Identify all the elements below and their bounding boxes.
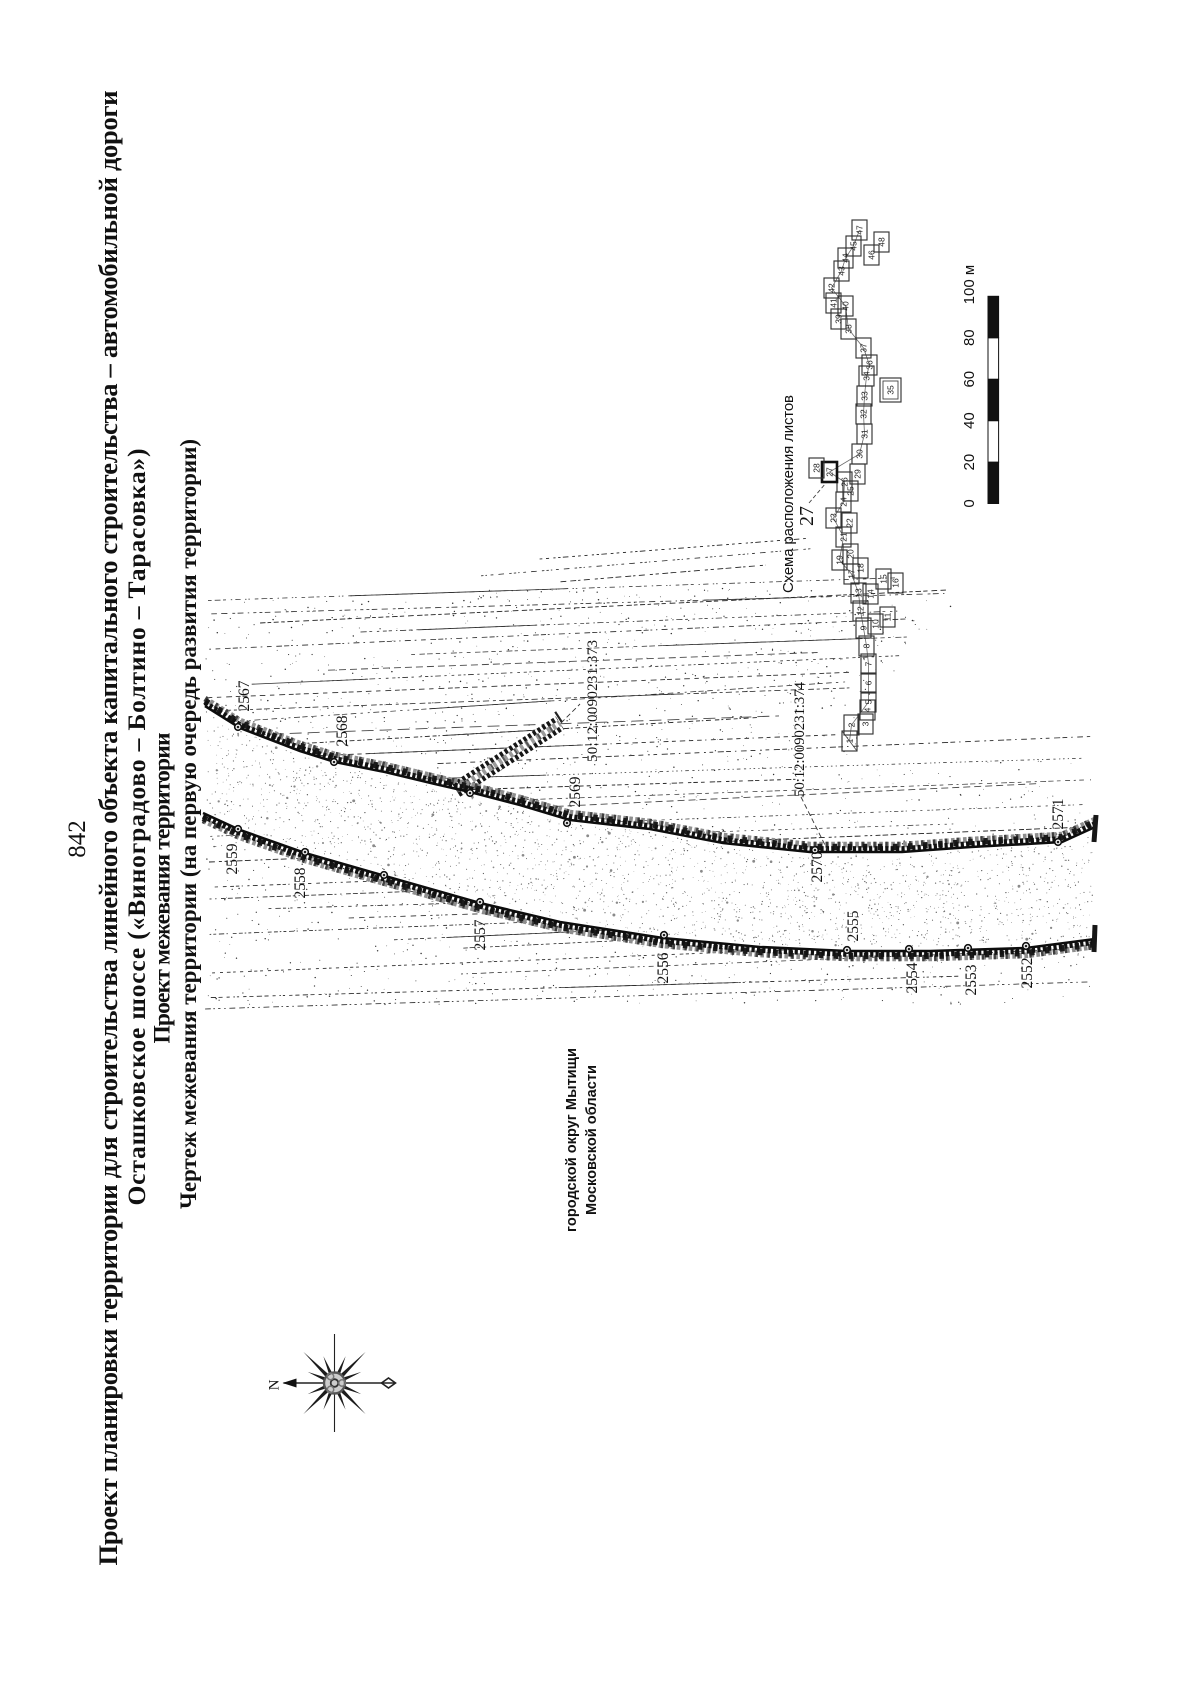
svg-text:15: 15 — [879, 574, 889, 584]
svg-text:41: 41 — [829, 298, 839, 308]
svg-text:6: 6 — [864, 680, 874, 685]
svg-text:2569: 2569 — [567, 776, 584, 807]
svg-text:32: 32 — [859, 409, 869, 419]
svg-text:27: 27 — [796, 506, 818, 526]
svg-text:100 м: 100 м — [961, 265, 978, 305]
svg-text:13: 13 — [854, 588, 864, 598]
svg-text:8: 8 — [862, 643, 872, 648]
svg-text:14: 14 — [866, 589, 876, 599]
svg-text:20: 20 — [961, 454, 978, 471]
svg-text:2568: 2568 — [334, 715, 351, 746]
svg-text:42: 42 — [827, 283, 837, 293]
svg-text:Схема расположения листов: Схема расположения листов — [780, 395, 797, 593]
svg-text:2558: 2558 — [292, 867, 309, 898]
svg-text:N: N — [267, 1379, 283, 1390]
svg-text:2559: 2559 — [224, 843, 241, 874]
svg-text:Чертеж межевания территории (н: Чертеж межевания территории (на первую о… — [176, 439, 201, 1209]
svg-text:2552: 2552 — [1019, 958, 1036, 989]
svg-text:Московской области: Московской области — [584, 1065, 600, 1215]
svg-text:37: 37 — [859, 343, 869, 353]
svg-text:48: 48 — [877, 237, 887, 247]
svg-text:2: 2 — [847, 722, 857, 727]
svg-text:2557: 2557 — [472, 919, 489, 950]
svg-text:2556: 2556 — [655, 952, 672, 983]
svg-text:26: 26 — [840, 477, 850, 487]
svg-text:20: 20 — [846, 549, 856, 559]
svg-text:7: 7 — [864, 661, 874, 666]
svg-text:27: 27 — [825, 467, 835, 477]
svg-text:40: 40 — [841, 301, 851, 311]
svg-text:3: 3 — [861, 721, 871, 726]
svg-text:47: 47 — [855, 225, 865, 235]
svg-text:2571: 2571 — [1050, 799, 1067, 830]
svg-text:10: 10 — [871, 619, 881, 629]
svg-text:25: 25 — [846, 486, 856, 496]
svg-text:36: 36 — [865, 360, 875, 370]
svg-text:Осташковское шоссе («Виноградо: Осташковское шоссе («Виноградово – Болти… — [122, 449, 151, 1206]
svg-text:11: 11 — [883, 612, 893, 621]
svg-text:23: 23 — [829, 513, 839, 523]
svg-text:16: 16 — [891, 578, 901, 588]
svg-text:40: 40 — [961, 412, 978, 429]
svg-text:35: 35 — [886, 385, 896, 395]
svg-text:842: 842 — [64, 820, 91, 858]
svg-text:60: 60 — [961, 371, 978, 388]
svg-text:28: 28 — [812, 463, 822, 473]
svg-text:Проект межевания территории: Проект межевания территории — [150, 733, 176, 1044]
svg-text:12: 12 — [856, 606, 866, 616]
svg-text:2553: 2553 — [963, 964, 980, 995]
svg-text:80: 80 — [961, 329, 978, 346]
svg-text:2570: 2570 — [809, 851, 826, 882]
svg-text:5: 5 — [864, 699, 874, 704]
svg-text:33: 33 — [860, 391, 870, 401]
svg-text:2567: 2567 — [236, 680, 253, 711]
svg-text:45: 45 — [849, 241, 859, 251]
svg-text:2555: 2555 — [845, 910, 862, 941]
svg-text:Проект планировки территории д: Проект планировки территории для строите… — [93, 91, 123, 1566]
svg-text:9: 9 — [859, 625, 869, 630]
svg-text:50:12:0090231:373: 50:12:0090231:373 — [585, 640, 601, 762]
svg-text:34: 34 — [862, 371, 872, 381]
svg-text:29: 29 — [853, 469, 863, 479]
svg-text:2554: 2554 — [904, 962, 921, 993]
svg-text:50:12:0090231:374: 50:12:0090231:374 — [792, 682, 808, 798]
svg-text:0: 0 — [961, 499, 978, 507]
svg-text:31: 31 — [860, 429, 870, 439]
svg-text:22: 22 — [845, 518, 855, 528]
svg-text:30: 30 — [855, 449, 865, 459]
svg-text:городской округ Мытищи: городской округ Мытищи — [564, 1048, 580, 1232]
